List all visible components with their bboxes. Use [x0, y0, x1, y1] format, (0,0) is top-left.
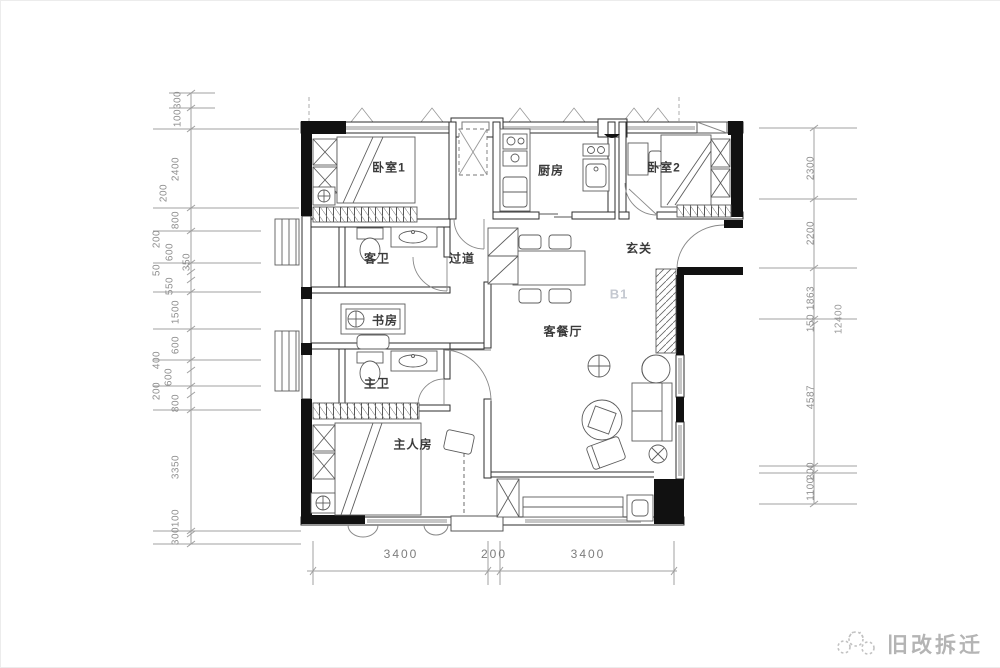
floorplan-canvas: 卧室1厨房卧室2客卫过道玄关书房客餐厅主卫主人房B130010024002008… [0, 0, 1000, 668]
ac-platforms [275, 219, 299, 391]
foyer-furniture [656, 269, 676, 353]
bedroom2-furniture [628, 135, 731, 217]
master-bath-fixtures [357, 351, 437, 385]
master-bedroom-furniture [311, 403, 475, 515]
watermark: 旧改拆迁 [833, 627, 983, 661]
watermark-logo-icon [833, 627, 879, 661]
kitchen-furniture [500, 129, 609, 211]
balcony-furniture [497, 479, 653, 521]
watermark-text: 旧改拆迁 [887, 629, 983, 659]
bedroom1-furniture [313, 129, 487, 222]
dining-furniture [488, 228, 585, 303]
guest-bath-fixtures [357, 227, 437, 262]
floorplan-drawing [1, 1, 1000, 667]
study-furniture [341, 304, 405, 349]
furniture [275, 129, 731, 521]
living-furniture [582, 355, 672, 470]
